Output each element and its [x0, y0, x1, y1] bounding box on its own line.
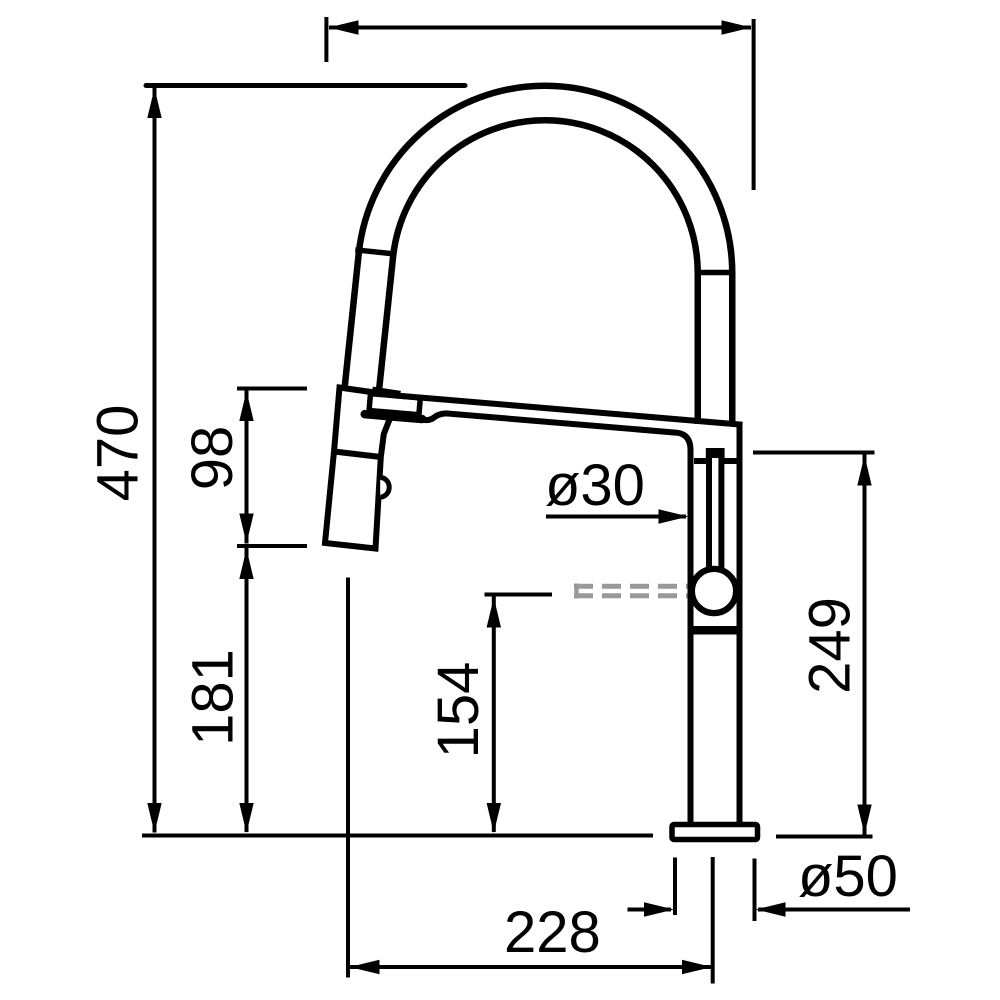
svg-text:470: 470 — [86, 405, 151, 502]
svg-text:ø30: ø30 — [545, 453, 645, 518]
svg-text:ø50: ø50 — [798, 844, 898, 909]
svg-text:181: 181 — [181, 649, 246, 746]
svg-text:98: 98 — [180, 426, 245, 491]
svg-text:228: 228 — [504, 900, 601, 965]
svg-text:249: 249 — [798, 597, 863, 694]
svg-text:154: 154 — [426, 662, 491, 759]
